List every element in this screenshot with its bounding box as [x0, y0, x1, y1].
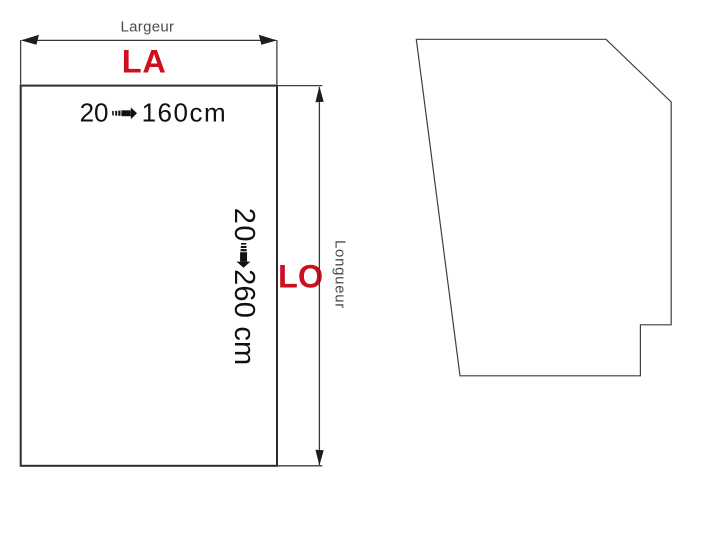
svg-text:LA: LA	[122, 44, 167, 80]
svg-text:20: 20	[80, 98, 109, 128]
svg-text:Longueur: Longueur	[331, 240, 348, 309]
svg-text:160cm: 160cm	[142, 98, 228, 128]
svg-text:Largeur: Largeur	[121, 19, 175, 36]
svg-text:260 cm: 260 cm	[228, 269, 260, 365]
svg-text:20: 20	[228, 208, 260, 243]
svg-text:LO: LO	[278, 258, 323, 294]
